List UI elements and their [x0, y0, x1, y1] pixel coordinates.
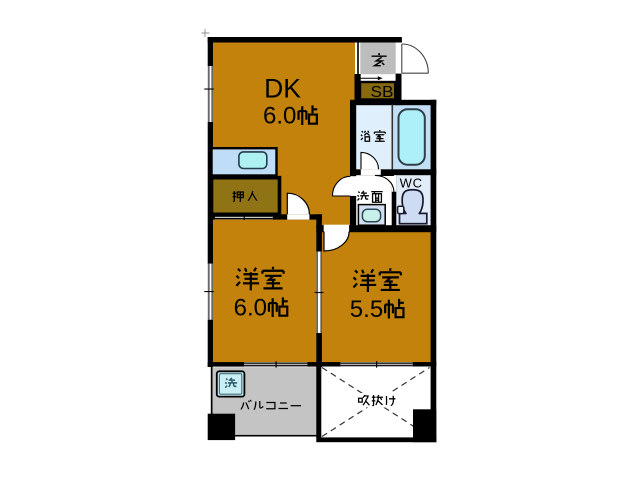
- svg-text:DK: DK: [264, 74, 301, 104]
- svg-text:SB: SB: [371, 84, 394, 101]
- svg-text:6.0: 6.0: [234, 295, 267, 322]
- svg-text:6.0: 6.0: [263, 103, 296, 130]
- svg-text:5.5: 5.5: [350, 296, 383, 323]
- svg-text:WC: WC: [400, 176, 423, 191]
